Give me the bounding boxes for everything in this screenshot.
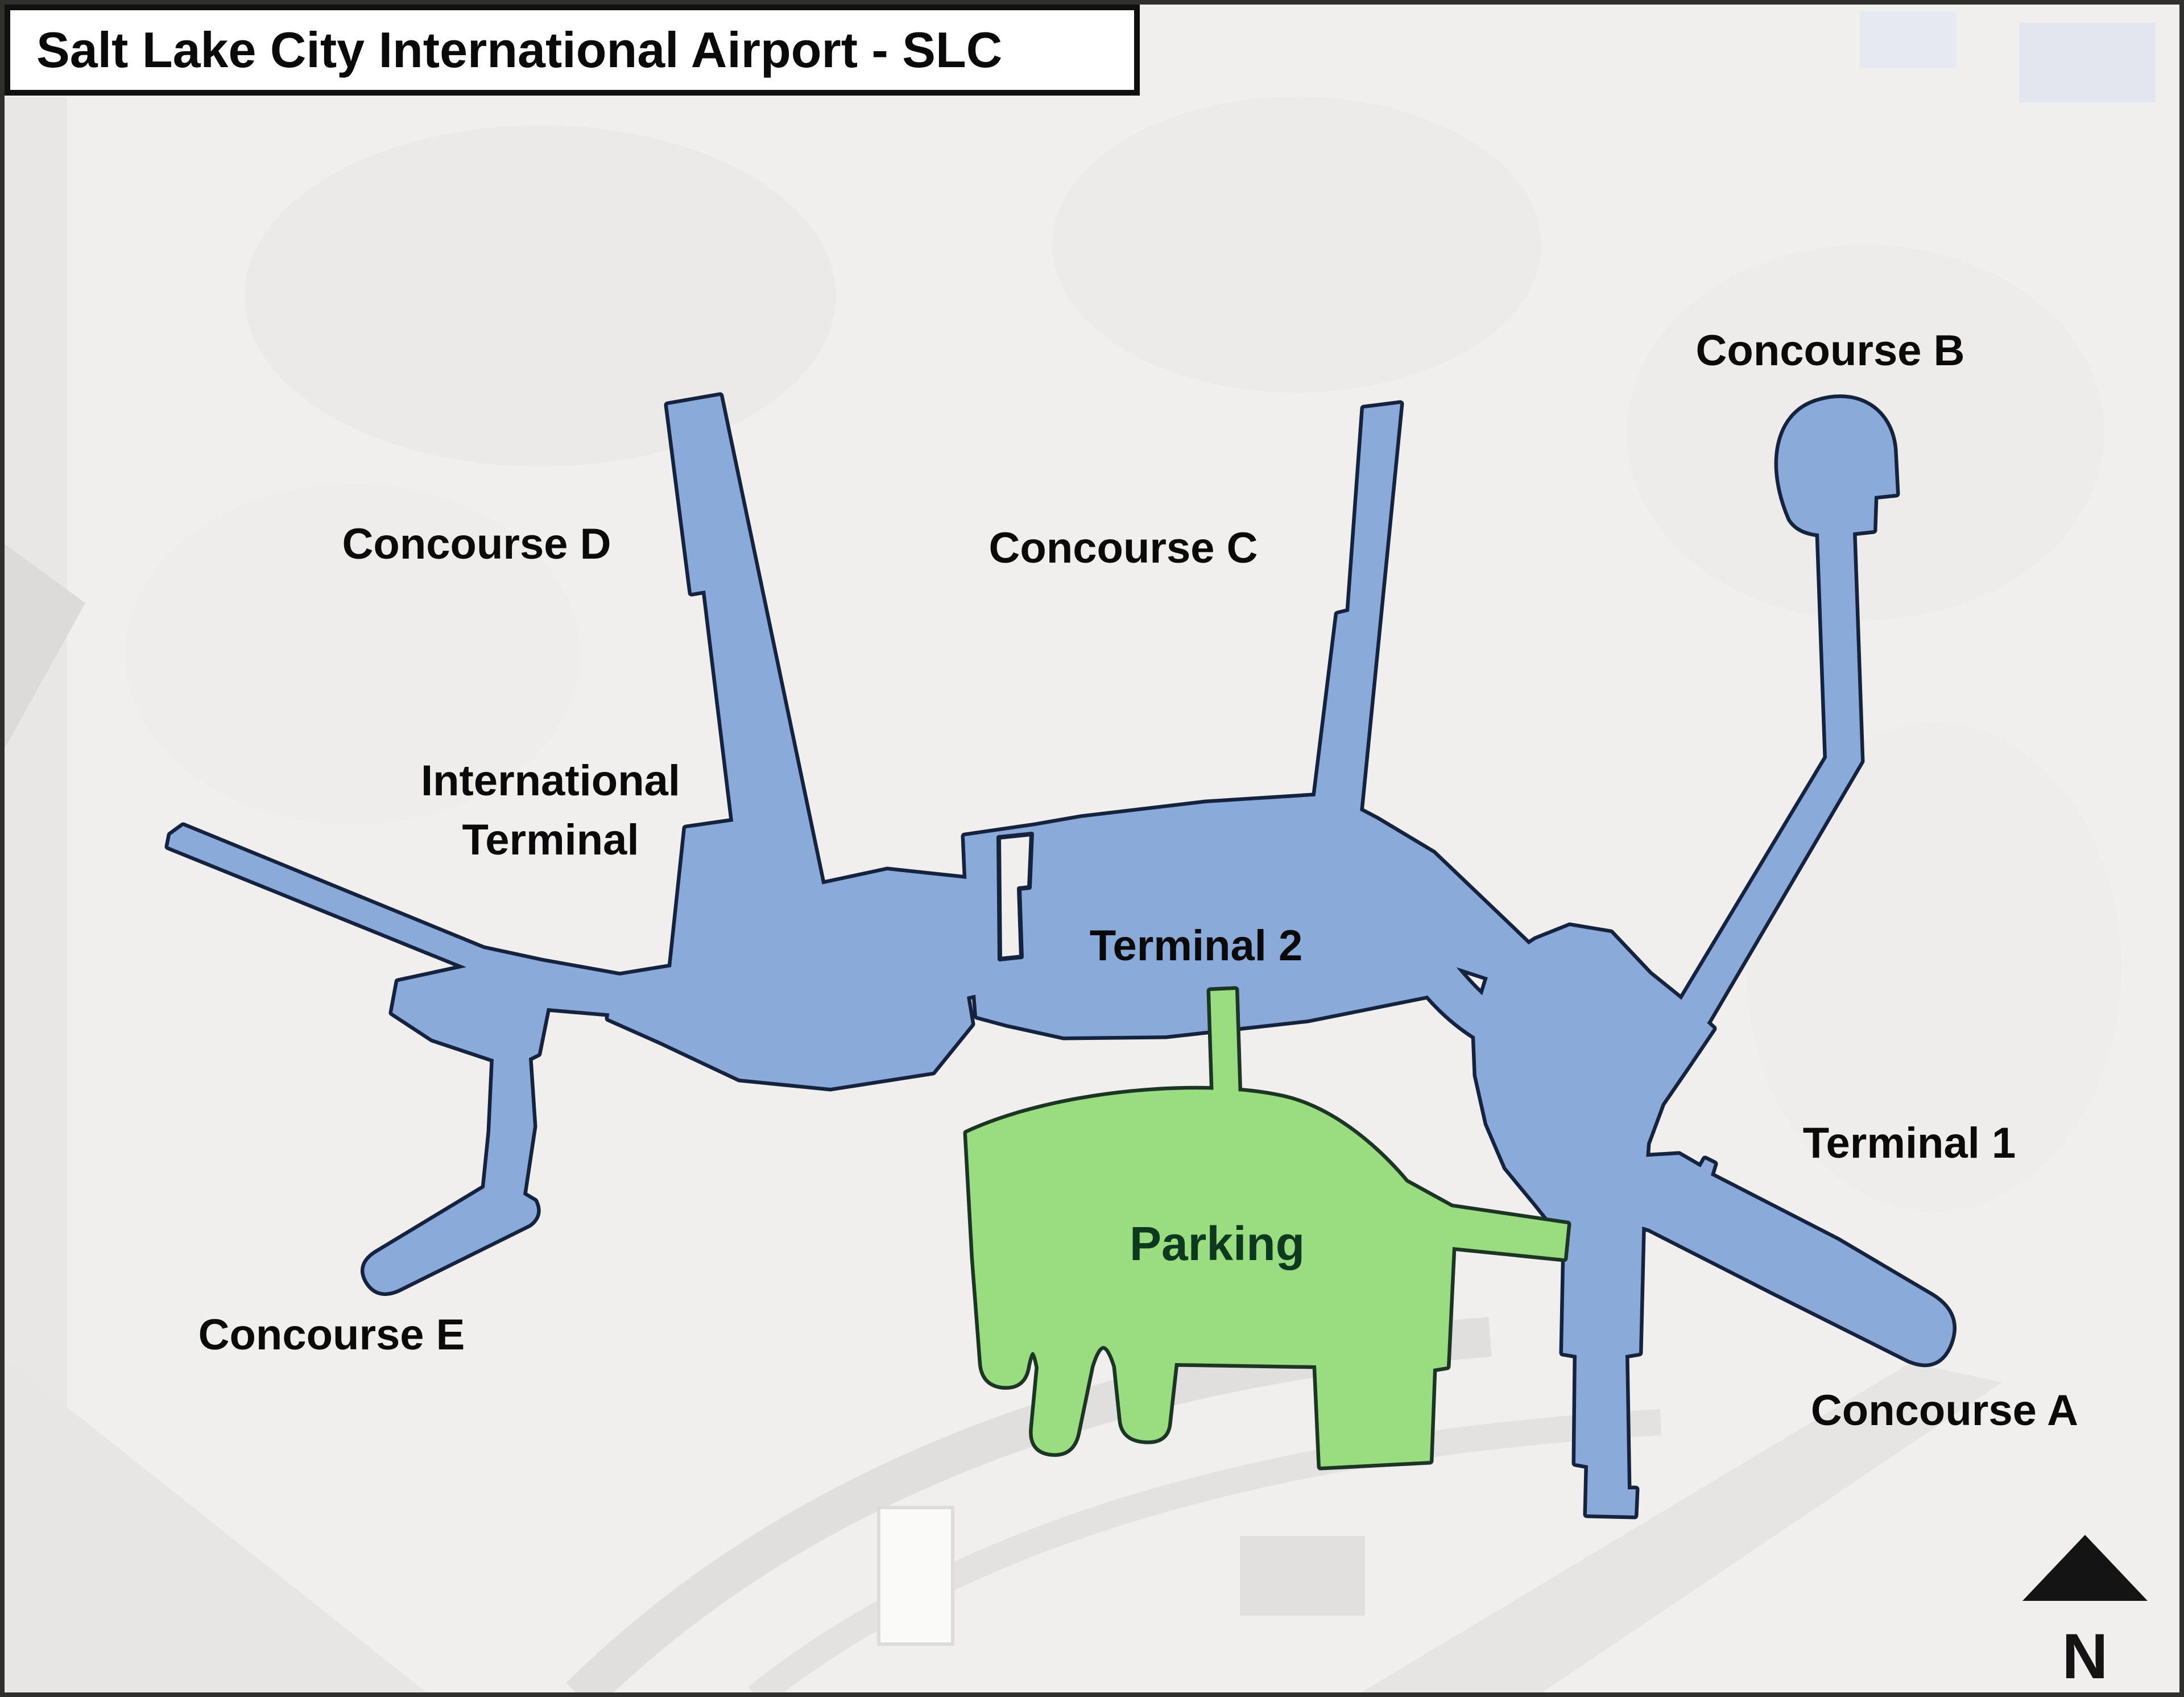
satellite-texture: [1860, 11, 1956, 68]
concourse-e-complex: [168, 826, 643, 1293]
satellite-texture: [1240, 1536, 1365, 1616]
parking-area: [967, 1089, 1567, 1467]
page-title: Salt Lake City International Airport - S…: [5, 5, 1140, 96]
north-compass: N: [2022, 1535, 2148, 1692]
concourse-b-label: Concourse B: [1696, 327, 1965, 375]
international-terminal-label-line2: Terminal: [462, 816, 639, 864]
satellite-texture: [2019, 23, 2156, 102]
north-arrow-icon: [2022, 1535, 2148, 1601]
airport-map: Concourse D Concourse C Concourse B Inte…: [0, 0, 2184, 1697]
parking-terminal2-connector: [1210, 990, 1239, 1099]
north-label: N: [2062, 1621, 2108, 1692]
satellite-texture: [879, 1508, 953, 1644]
concourse-a-label: Concourse A: [1811, 1386, 2078, 1435]
concourse-e-label: Concourse E: [198, 1311, 465, 1359]
terminal-2-label: Terminal 2: [1090, 922, 1303, 970]
terminal-1-label: Terminal 1: [1803, 1119, 2016, 1167]
satellite-texture: [245, 125, 836, 466]
parking-label: Parking: [1130, 1217, 1305, 1270]
concourse-e-complex: [168, 826, 643, 1293]
concourse-c-label: Concourse C: [989, 524, 1258, 572]
concourse-d-label: Concourse D: [342, 520, 611, 568]
international-terminal-label-line1: International: [421, 757, 680, 805]
satellite-texture: [1052, 97, 1541, 393]
map-canvas: Concourse D Concourse C Concourse B Inte…: [0, 0, 2184, 1697]
